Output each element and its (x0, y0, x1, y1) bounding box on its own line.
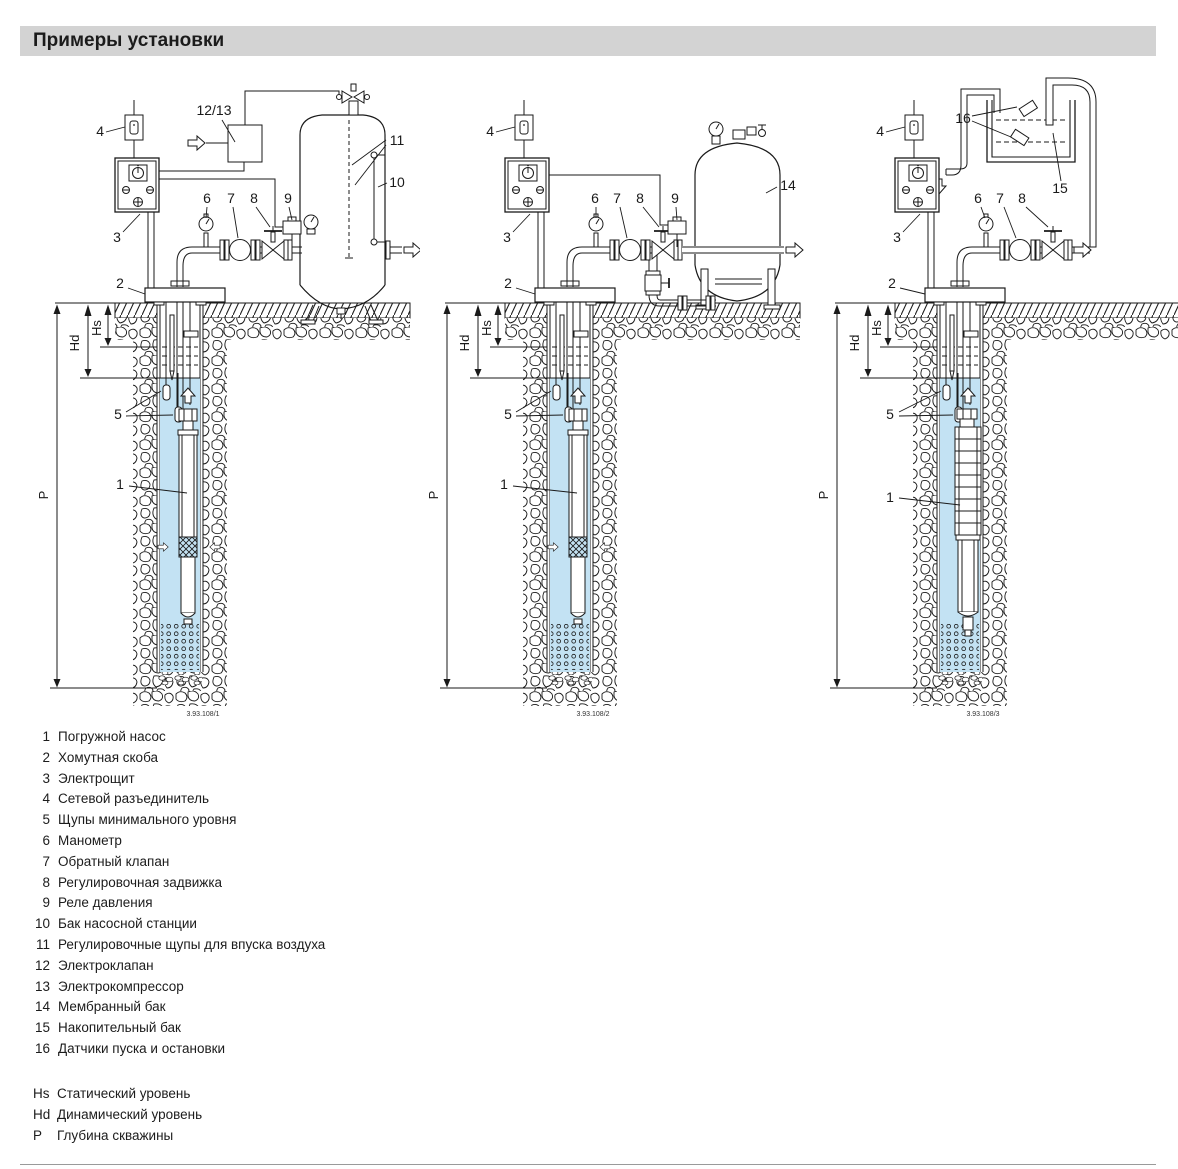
legend-item-number: 11 (33, 935, 50, 956)
start-stop-sensor (1011, 129, 1029, 145)
legend-item-number: 3 (33, 769, 50, 790)
pressure-switch (668, 217, 686, 247)
legend-item-text: Реле давления (58, 895, 153, 910)
legend-item: 11Регулировочные щупы для впуска воздуха (33, 935, 325, 956)
legend-item-number: 7 (33, 852, 50, 873)
legend-item: 8Регулировочная задвижка (33, 873, 325, 894)
legend-item: 3Электрощит (33, 769, 325, 790)
callout-disconnect: 4 (876, 123, 884, 139)
well-section (50, 281, 410, 706)
valve-compressor-box (228, 125, 262, 162)
legend-item: 4Сетевой разъединитель (33, 789, 325, 810)
callout-panel: 3 (113, 229, 121, 245)
abbreviation-text: Динамический уровень (57, 1107, 202, 1122)
callout-pump: 1 (500, 476, 508, 492)
callout-gate-valve: 8 (1018, 190, 1026, 206)
abbreviation-item: HdДинамический уровень (33, 1104, 202, 1125)
page-title-bar: Примеры установки (20, 26, 1156, 56)
level-depth-label: P (816, 491, 831, 500)
abbreviation-text: Статический уровень (57, 1086, 190, 1101)
legend-item-text: Обратный клапан (58, 854, 169, 869)
callout-check-valve: 7 (227, 190, 235, 206)
callout-gate-valve: 8 (250, 190, 258, 206)
legend-item-number: 14 (33, 997, 50, 1018)
callout-air-probes: 11 (390, 132, 405, 148)
legend-item-text: Регулировочные щупы для впуска воздуха (58, 937, 325, 952)
callout-clamp: 2 (888, 275, 896, 291)
callout-pressure-switch: 9 (284, 190, 292, 206)
diagram-membrane-tank-installation: 4 3 6 7 8 9 14 2 5 1 Hs Hd P 3.93.108/2 (420, 75, 810, 735)
level-dynamic-label: Hd (67, 335, 82, 352)
callout-disconnect: 4 (96, 123, 104, 139)
diagram-storage-tank-installation: 4 3 16 15 6 7 8 2 5 1 Hs Hd P 3.93.108/3 (810, 75, 1178, 735)
callout-sensors: 16 (955, 110, 971, 126)
wire (549, 175, 668, 225)
figure-caption: 3.93.108/1 (186, 711, 219, 718)
legend-item: 13Электрокомпрессор (33, 977, 325, 998)
callout-manometer: 6 (974, 190, 982, 206)
legend-item-number: 2 (33, 748, 50, 769)
callout-panel: 3 (503, 229, 511, 245)
callout-check-valve: 7 (996, 190, 1004, 206)
wire (159, 179, 283, 227)
legend-item-text: Погружной насос (58, 729, 166, 744)
well-section (440, 281, 800, 706)
callout-pressure-switch: 9 (671, 190, 679, 206)
legend-item-number: 6 (33, 831, 50, 852)
callout-probes: 5 (886, 406, 894, 422)
abbreviation-text: Глубина скважины (57, 1128, 173, 1143)
wire (159, 162, 244, 171)
level-static-label: Hs (479, 320, 494, 336)
flow-arrow-icon (1074, 243, 1091, 257)
callout-pump: 1 (116, 476, 124, 492)
legend-item-number: 13 (33, 977, 50, 998)
callout-manometer: 6 (203, 190, 211, 206)
legend-item-text: Датчики пуска и остановки (58, 1041, 225, 1056)
legend: 1Погружной насос 2Хомутная скоба 3Электр… (33, 727, 325, 1060)
legend-item-text: Электрокомпрессор (58, 979, 184, 994)
abbreviation-key: P (33, 1125, 57, 1146)
callout-tank: 14 (780, 177, 796, 193)
legend-item-text: Мембранный бак (58, 999, 166, 1014)
diagram-pressure-tank-installation: 4 12/13 11 10 3 6 7 8 9 2 5 1 Hs Hd P 3.… (30, 75, 420, 735)
level-dynamic-label: Hd (847, 335, 862, 352)
figure-caption: 3.93.108/3 (966, 711, 999, 718)
legend-item-text: Щупы минимального уровня (58, 812, 236, 827)
legend-item: 12Электроклапан (33, 956, 325, 977)
legend-item-text: Сетевой разъединитель (58, 791, 209, 806)
air-intake-arrow-icon (188, 136, 205, 150)
legend-item-number: 16 (33, 1039, 50, 1060)
legend-item: 7Обратный клапан (33, 852, 325, 873)
legend-item: 2Хомутная скоба (33, 748, 325, 769)
level-depth-label: P (36, 491, 51, 500)
footer-rule (20, 1164, 1156, 1165)
legend-item: 14Мембранный бак (33, 997, 325, 1018)
callout-check-valve: 7 (613, 190, 621, 206)
legend-item: 6Манометр (33, 831, 325, 852)
abbreviation-item: PГлубина скважины (33, 1125, 202, 1146)
start-stop-sensor (1019, 100, 1037, 116)
legend-item-number: 10 (33, 914, 50, 935)
abbreviation-key: Hd (33, 1104, 57, 1125)
abbreviation-item: HsСтатический уровень (33, 1083, 202, 1104)
legend-item-number: 15 (33, 1018, 50, 1039)
air-line (245, 91, 339, 125)
callout-clamp: 2 (116, 275, 124, 291)
membrane-tank (695, 122, 780, 309)
well-section (830, 281, 1178, 706)
legend-item-text: Хомутная скоба (58, 750, 158, 765)
legend-item: 10Бак насосной станции (33, 914, 325, 935)
legend-item: 15Накопительный бак (33, 1018, 325, 1039)
level-depth-label: P (426, 491, 441, 500)
callout-valve-compressor: 12/13 (196, 102, 231, 118)
legend-item-text: Бак насосной станции (58, 916, 197, 931)
callout-probes: 5 (504, 406, 512, 422)
legend-item: 5Щупы минимального уровня (33, 810, 325, 831)
level-static-label: Hs (869, 320, 884, 336)
callout-manometer: 6 (591, 190, 599, 206)
level-static-label: Hs (89, 320, 104, 336)
legend-item-text: Регулировочная задвижка (58, 875, 222, 890)
pump-station-tank (300, 84, 402, 324)
legend-item-text: Электрощит (58, 771, 135, 786)
legend-item-text: Накопительный бак (58, 1020, 181, 1035)
abbreviations: HsСтатический уровень HdДинамический уро… (33, 1083, 202, 1146)
callout-tank: 10 (389, 174, 405, 190)
surface-pipework (957, 214, 1072, 287)
callout-clamp: 2 (504, 275, 512, 291)
abbreviation-key: Hs (33, 1083, 57, 1104)
legend-item-text: Манометр (58, 833, 122, 848)
legend-item: 9Реле давления (33, 893, 325, 914)
legend-item: 16Датчики пуска и остановки (33, 1039, 325, 1060)
callout-disconnect: 4 (486, 123, 494, 139)
legend-item-number: 4 (33, 789, 50, 810)
callout-gate-valve: 8 (636, 190, 644, 206)
outflow-arrow-icon (786, 243, 803, 257)
legend-item-number: 12 (33, 956, 50, 977)
callout-pump: 1 (886, 489, 894, 505)
legend-item-number: 9 (33, 893, 50, 914)
callout-panel: 3 (893, 229, 901, 245)
outflow-arrow-icon (404, 243, 420, 257)
legend-item-number: 5 (33, 810, 50, 831)
legend-item-number: 1 (33, 727, 50, 748)
callout-tank: 15 (1052, 180, 1068, 196)
level-dynamic-label: Hd (457, 335, 472, 352)
figure-caption: 3.93.108/2 (576, 711, 609, 718)
legend-item: 1Погружной насос (33, 727, 325, 748)
legend-item-text: Электроклапан (58, 958, 154, 973)
callout-probes: 5 (114, 406, 122, 422)
page-title: Примеры установки (20, 26, 1156, 56)
legend-item-number: 8 (33, 873, 50, 894)
